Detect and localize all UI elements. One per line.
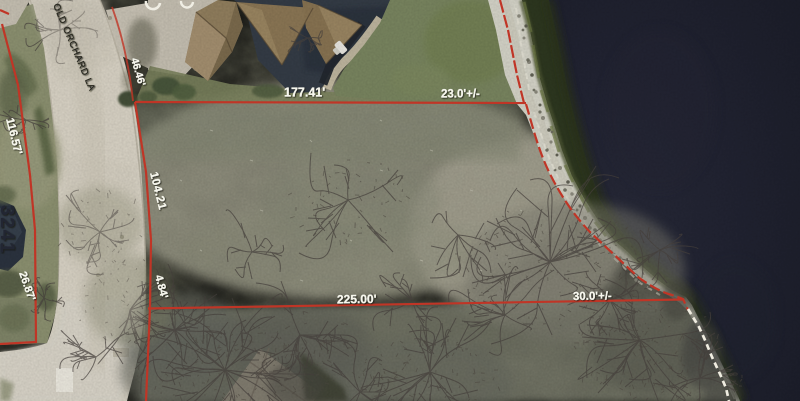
svg-text:225.00': 225.00' — [337, 292, 377, 307]
svg-text:3241: 3241 — [0, 205, 17, 254]
svg-text:30.0'+/-: 30.0'+/- — [573, 290, 612, 303]
svg-text:177.41': 177.41' — [284, 86, 325, 100]
svg-text:23.0'+/-: 23.0'+/- — [441, 89, 480, 101]
